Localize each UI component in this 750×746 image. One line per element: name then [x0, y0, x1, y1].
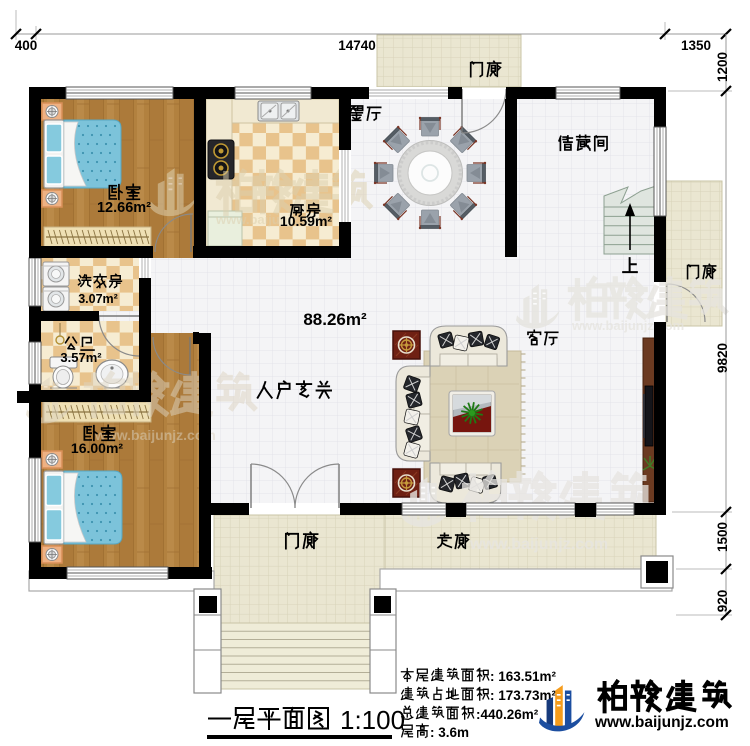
svg-text::440.26m²: :440.26m² — [476, 707, 539, 722]
svg-text:1500: 1500 — [715, 522, 730, 552]
svg-text:www.baijunjz.com: www.baijunjz.com — [594, 714, 729, 731]
svg-text:www.baijunjz.com: www.baijunjz.com — [571, 318, 684, 333]
svg-text:: 3.6m: : 3.6m — [430, 725, 469, 740]
svg-text:400: 400 — [15, 38, 38, 53]
svg-text:12.66m²: 12.66m² — [97, 200, 151, 216]
svg-text:www.baijunjz.com: www.baijunjz.com — [469, 536, 608, 553]
svg-text:: 173.73m²: : 173.73m² — [490, 688, 557, 703]
svg-text:88.26m²: 88.26m² — [303, 310, 367, 329]
svg-text:9820: 9820 — [715, 343, 730, 373]
svg-text:920: 920 — [715, 590, 730, 613]
svg-text:1:100: 1:100 — [340, 705, 405, 735]
svg-text:3.07m²: 3.07m² — [78, 292, 118, 306]
svg-text:1350: 1350 — [681, 38, 711, 53]
svg-text:1200: 1200 — [715, 52, 730, 82]
svg-text:14740: 14740 — [338, 38, 376, 53]
svg-text:: 163.51m²: : 163.51m² — [490, 669, 557, 684]
svg-text:3.57m²: 3.57m² — [60, 350, 102, 365]
svg-text:16.00m²: 16.00m² — [71, 440, 123, 456]
svg-text:10.59m²: 10.59m² — [280, 213, 332, 229]
